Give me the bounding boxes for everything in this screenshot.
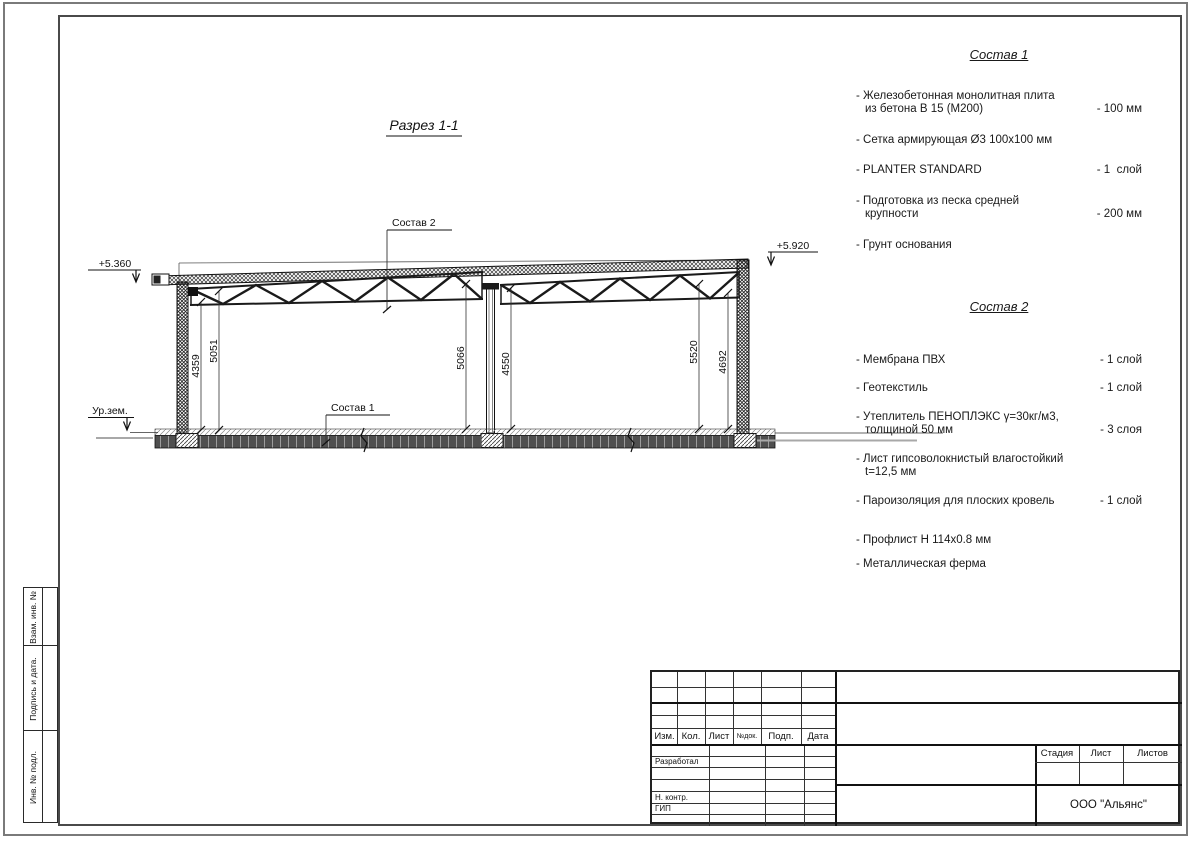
title-block: Изм. Кол. Лист №док. Подп. Дата Разработ… (650, 670, 1180, 824)
elevation-label: +5.360 (99, 258, 132, 270)
composition-title: Состав 1 (856, 48, 1142, 62)
material-name: - Мембрана ПВХ (856, 354, 945, 368)
material-value: - 1 слой (1100, 495, 1142, 509)
material-item: - Геотекстиль - 1 слой (856, 382, 1142, 396)
material-name: - PLANTER STANDARD (856, 164, 982, 178)
leader-label: Состав 2 (392, 217, 436, 229)
leader-label: Состав 1 (331, 402, 375, 414)
material-item: - Утеплитель ПЕНОПЛЭКС γ=30кг/м3, толщин… (856, 411, 1142, 438)
composition-list-1: Состав 1 - Железобетонная монолитная пли… (856, 48, 1142, 269)
dimension-label: 5520 (688, 340, 700, 364)
material-item: - Мембрана ПВХ - 1 слой (856, 354, 1142, 368)
material-value: - 1 слой (1100, 354, 1142, 368)
tb-row-ncontrol: Н. контр. (652, 791, 712, 803)
tb-sheet: Лист (1079, 744, 1123, 762)
side-strip-label: Инв. № подл. (24, 731, 42, 824)
right-wall (737, 260, 749, 438)
dimension-label: 4359 (190, 354, 202, 378)
material-value: - 1 слой (1100, 382, 1142, 396)
tb-col-ndok: №док. (733, 728, 761, 744)
material-value: - 100 мм (1097, 103, 1142, 117)
material-item: - Сетка армирующая Ø3 100х100 мм (856, 134, 1142, 148)
side-strip-cell: Подпись и дата. (23, 645, 58, 731)
composition-list-2: Состав 2 - Мембрана ПВХ - 1 слой - Геоте… (856, 300, 1142, 586)
composition-title: Состав 2 (856, 300, 1142, 314)
dimension-labels: 4359 5051 5066 4550 5520 4692 (190, 339, 729, 378)
side-strip-label: Взам. инв. № (24, 588, 42, 647)
floor-slab (96, 428, 943, 452)
side-strip-cell: Инв. № подл. (23, 730, 58, 823)
material-name: - Подготовка из песка средней крупности (856, 195, 1019, 222)
dimension-label: 5051 (208, 339, 220, 363)
center-column (487, 289, 495, 433)
tb-col-izm: Изм. (652, 728, 677, 744)
material-name: - Грунт основания (856, 239, 952, 253)
dimension-label: 4550 (500, 352, 512, 376)
material-item: - Лист гипсоволокнистый влагостойкий t=1… (856, 453, 1142, 480)
material-name: - Пароизоляция для плоских кровель (856, 495, 1055, 509)
material-item: - Грунт основания (856, 239, 1142, 253)
material-value: - 3 слоя (1100, 424, 1142, 438)
ground-level-mark: Ур.зем. (88, 405, 134, 430)
material-name: - Профлист Н 114х0.8 мм (856, 534, 991, 548)
section-drawing: Разрез 1-1 (60, 95, 960, 475)
material-name: - Геотекстиль (856, 382, 930, 396)
tb-stage: Стадия (1035, 744, 1079, 762)
material-item: - Подготовка из песка средней крупности … (856, 195, 1142, 222)
side-strip-cell: Взам. инв. № (23, 587, 58, 646)
truss-right (500, 272, 740, 304)
material-item: - Пароизоляция для плоских кровель - 1 с… (856, 495, 1142, 509)
side-strip-label: Подпись и дата. (24, 646, 42, 732)
elevation-label: +5.920 (777, 240, 810, 252)
tb-col-kol: Кол. (677, 728, 705, 744)
side-strip: Взам. инв. № Подпись и дата. Инв. № подл… (23, 587, 58, 823)
tb-row-gip: ГИП (652, 803, 712, 814)
material-item: - Профлист Н 114х0.8 мм (856, 534, 1142, 548)
tb-sheets: Листов (1123, 744, 1182, 762)
tb-col-data: Дата (801, 728, 835, 744)
tb-col-podp: Подп. (761, 728, 801, 744)
tb-row-developer: Разработал (652, 756, 712, 767)
elevation-right: +5.920 (768, 240, 819, 265)
material-value: - 200 мм (1097, 208, 1142, 222)
material-item: - PLANTER STANDARD - 1 слой (856, 164, 1142, 178)
drawing-sheet: Разрез 1-1 (0, 0, 1191, 842)
material-name: - Лист гипсоволокнистый влагостойкий t=1… (856, 453, 1063, 480)
material-item: - Металлическая ферма (856, 558, 1142, 572)
dimension-label: 4692 (717, 350, 729, 374)
material-name: - Утеплитель ПЕНОПЛЭКС γ=30кг/м3, толщин… (856, 411, 1059, 438)
ground-label: Ур.зем. (92, 405, 128, 417)
company-name: ООО "Альянс" (1035, 784, 1182, 826)
section-title: Разрез 1-1 (389, 117, 458, 133)
material-name: - Сетка армирующая Ø3 100х100 мм (856, 134, 1052, 148)
material-item: - Железобетонная монолитная плита из бет… (856, 90, 1142, 117)
tb-col-list: Лист (705, 728, 733, 744)
dimension-label: 5066 (455, 346, 467, 370)
left-wall (177, 282, 188, 433)
material-value: - 1 слой (1097, 164, 1142, 178)
material-name: - Железобетонная монолитная плита из бет… (856, 90, 1055, 117)
material-name: - Металлическая ферма (856, 558, 986, 572)
elevation-left: +5.360 (88, 258, 141, 282)
